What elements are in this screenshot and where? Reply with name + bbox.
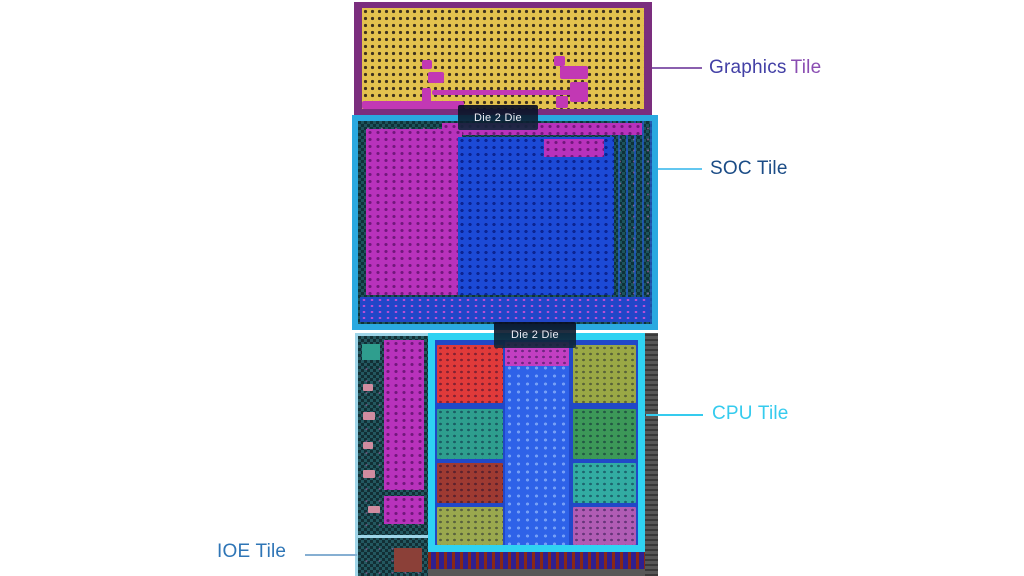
ioe-tile: [355, 333, 428, 576]
graphics-tile: [354, 2, 652, 115]
die-feature: [368, 506, 380, 513]
graphics-callout-line: [652, 67, 702, 69]
cpu-block-pink: [573, 507, 636, 545]
ioe-tile-label: IOE Tile: [217, 541, 286, 563]
die-feature: [556, 96, 568, 108]
die-feature: [560, 66, 588, 79]
cpu-block-red: [437, 345, 503, 403]
soc-upper-patch: [544, 139, 604, 157]
graphics-tile-label-word2: Tile: [791, 57, 822, 78]
graphics-tile-surface: [362, 8, 644, 109]
die-feature: [362, 344, 380, 360]
soc-bottom-band: [360, 297, 650, 322]
ioe-callout-line: [305, 554, 357, 556]
graphics-tile-label-word1: Graphics: [709, 57, 787, 78]
die-feature: [363, 470, 375, 478]
die-feature: [363, 442, 373, 449]
cpu-block-teal: [437, 409, 503, 459]
bump-pad-row: [428, 552, 645, 569]
die-feature: [362, 101, 464, 109]
die-edge-band: [645, 333, 658, 576]
graphics-tile-label: GraphicsTile: [709, 57, 821, 79]
cpu-block-darkred: [437, 463, 503, 503]
soc-left-block: [366, 129, 462, 295]
die2die-label-top: Die 2 Die: [458, 105, 538, 130]
slide-canvas: Die 2 Die Die 2 Die GraphicsTile SOC Til…: [0, 0, 1024, 576]
die-feature: [394, 548, 422, 572]
soc-callout-line: [658, 168, 702, 170]
soc-tile: [352, 115, 658, 330]
cpu-tile-label: CPU Tile: [712, 403, 789, 425]
die2die-label-bottom: Die 2 Die: [494, 322, 576, 348]
ioe-main-block: [384, 340, 424, 490]
die-bottom-edge: [428, 569, 645, 576]
die-feature: [554, 56, 565, 66]
ioe-lower-block: [384, 496, 424, 524]
die-feature: [363, 384, 373, 391]
cpu-callout-line: [646, 414, 703, 416]
soc-tile-label: SOC Tile: [710, 158, 788, 180]
die-feature: [422, 60, 432, 69]
cpu-block-olive2: [437, 507, 503, 545]
die-feature: [570, 82, 588, 102]
die-feature: [432, 90, 580, 95]
soc-main-block: [458, 137, 614, 295]
cpu-block-green: [573, 409, 636, 459]
cpu-block-cyan: [573, 463, 636, 503]
die-feature: [363, 412, 375, 420]
die-feature: [428, 72, 444, 83]
soc-right-io-columns: [610, 121, 652, 324]
cpu-tile: [428, 333, 645, 552]
cpu-fabric-spine: [505, 340, 569, 545]
cpu-block-olive: [573, 345, 636, 403]
ioe-divider: [358, 535, 428, 538]
